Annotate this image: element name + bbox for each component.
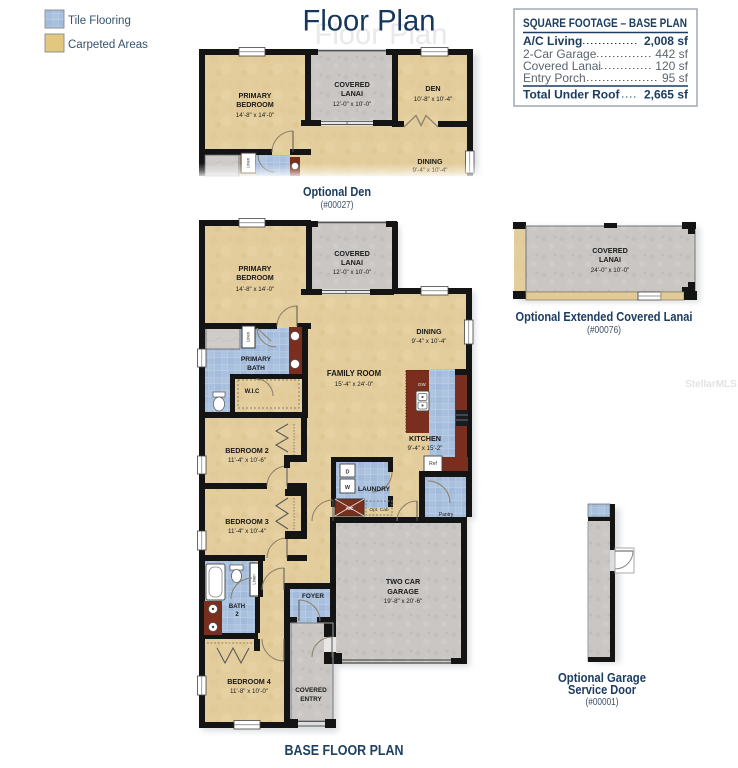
svg-text:12’-0" x 10’-0": 12’-0" x 10’-0" <box>333 101 371 108</box>
svg-text:COVERED: COVERED <box>295 687 327 694</box>
svg-text:PRIMARY: PRIMARY <box>241 356 272 363</box>
svg-text:Floor Plan: Floor Plan <box>303 5 436 38</box>
svg-text:15’-4" x 24’-0": 15’-4" x 24’-0" <box>335 381 373 388</box>
svg-text:Linen: Linen <box>252 574 257 585</box>
svg-text:BEDROOM 3: BEDROOM 3 <box>225 517 269 526</box>
svg-text:BEDROOM: BEDROOM <box>236 100 274 109</box>
svg-text:FOYER: FOYER <box>302 593 324 600</box>
svg-text:11’-4" x 10’-4": 11’-4" x 10’-4" <box>228 528 266 535</box>
svg-text:11’-4" x 10’-6": 11’-4" x 10’-6" <box>228 457 266 464</box>
svg-text:11’-8" x 10’-0": 11’-8" x 10’-0" <box>230 688 268 695</box>
svg-text:PRIMARY: PRIMARY <box>239 264 272 273</box>
svg-text:LANAI: LANAI <box>599 255 621 264</box>
svg-text:COVERED: COVERED <box>592 246 628 255</box>
svg-text:A/C: A/C <box>346 506 355 511</box>
svg-text:BEDROOM: BEDROOM <box>236 273 274 282</box>
svg-text:9’-4" x 15’-2": 9’-4" x 15’-2" <box>407 445 442 452</box>
svg-text:D: D <box>346 470 350 476</box>
svg-text:StellarMLS: StellarMLS <box>685 379 737 390</box>
svg-text:LANAI: LANAI <box>341 89 363 98</box>
svg-text:BEDROOM 2: BEDROOM 2 <box>225 446 269 455</box>
svg-text:10’-8" x 10’-4": 10’-8" x 10’-4" <box>414 96 452 103</box>
svg-text:9’-4" x 10’-4": 9’-4" x 10’-4" <box>411 338 446 345</box>
svg-text:(#00001): (#00001) <box>586 697 619 708</box>
svg-text:GARAGE: GARAGE <box>387 587 419 596</box>
svg-text:COVERED: COVERED <box>334 80 370 89</box>
svg-text:BEDROOM 4: BEDROOM 4 <box>227 677 271 686</box>
svg-text:19’-8" x 20’-6": 19’-8" x 20’-6" <box>384 598 422 605</box>
svg-text:BATH: BATH <box>229 604 245 610</box>
svg-text:Optional Extended Covered Lana: Optional Extended Covered Lanai <box>516 309 693 324</box>
svg-text:95 sf: 95 sf <box>662 71 689 85</box>
svg-text:DW: DW <box>418 382 426 387</box>
svg-text:Tile Flooring: Tile Flooring <box>68 15 131 27</box>
svg-text:2,665 sf: 2,665 sf <box>644 88 689 102</box>
svg-text:2,008 sf: 2,008 sf <box>644 34 689 48</box>
svg-text:Linen: Linen <box>246 331 251 342</box>
svg-text:(#00027): (#00027) <box>321 200 354 211</box>
svg-text:LANAI: LANAI <box>341 258 363 267</box>
svg-text:Service Door: Service Door <box>568 682 636 697</box>
svg-text:14’-8" x 14’-0": 14’-8" x 14’-0" <box>236 112 274 119</box>
svg-text:Carpeted Areas: Carpeted Areas <box>68 39 148 51</box>
svg-text:W.I.C: W.I.C <box>245 389 260 395</box>
svg-text:A/C Living: A/C Living <box>523 34 582 48</box>
svg-text:Total Under Roof: Total Under Roof <box>523 88 620 102</box>
svg-text:DEN: DEN <box>425 84 440 93</box>
svg-text:PRIMARY: PRIMARY <box>239 91 272 100</box>
svg-text:FAMILY ROOM: FAMILY ROOM <box>327 369 381 378</box>
svg-text:BATH: BATH <box>247 365 265 372</box>
svg-text:Opt. Cab: Opt. Cab <box>369 507 389 513</box>
svg-text:W: W <box>345 485 351 491</box>
svg-text:(#00076): (#00076) <box>587 325 621 336</box>
svg-text:DINING: DINING <box>416 327 442 336</box>
svg-text:BASE FLOOR PLAN: BASE FLOOR PLAN <box>285 743 404 759</box>
svg-text:12’-0" x 10’-0": 12’-0" x 10’-0" <box>333 269 371 276</box>
svg-text:Pantry: Pantry <box>439 512 454 518</box>
svg-text:Entry Porch: Entry Porch <box>523 71 586 85</box>
svg-text:TWO CAR: TWO CAR <box>386 577 421 586</box>
svg-text:COVERED: COVERED <box>334 249 370 258</box>
svg-text:ENTRY: ENTRY <box>300 696 322 703</box>
svg-text:24’-0" x 10’-0": 24’-0" x 10’-0" <box>591 267 629 274</box>
svg-text:LAUNDRY: LAUNDRY <box>358 486 391 493</box>
svg-text:KITCHEN: KITCHEN <box>409 434 441 443</box>
svg-text:SQUARE FOOTAGE – BASE PLAN: SQUARE FOOTAGE – BASE PLAN <box>523 16 687 30</box>
svg-text:Optional Den: Optional Den <box>303 184 371 199</box>
svg-text:Ref: Ref <box>429 461 437 467</box>
svg-text:14’-8" x 14’-0": 14’-8" x 14’-0" <box>236 286 274 293</box>
